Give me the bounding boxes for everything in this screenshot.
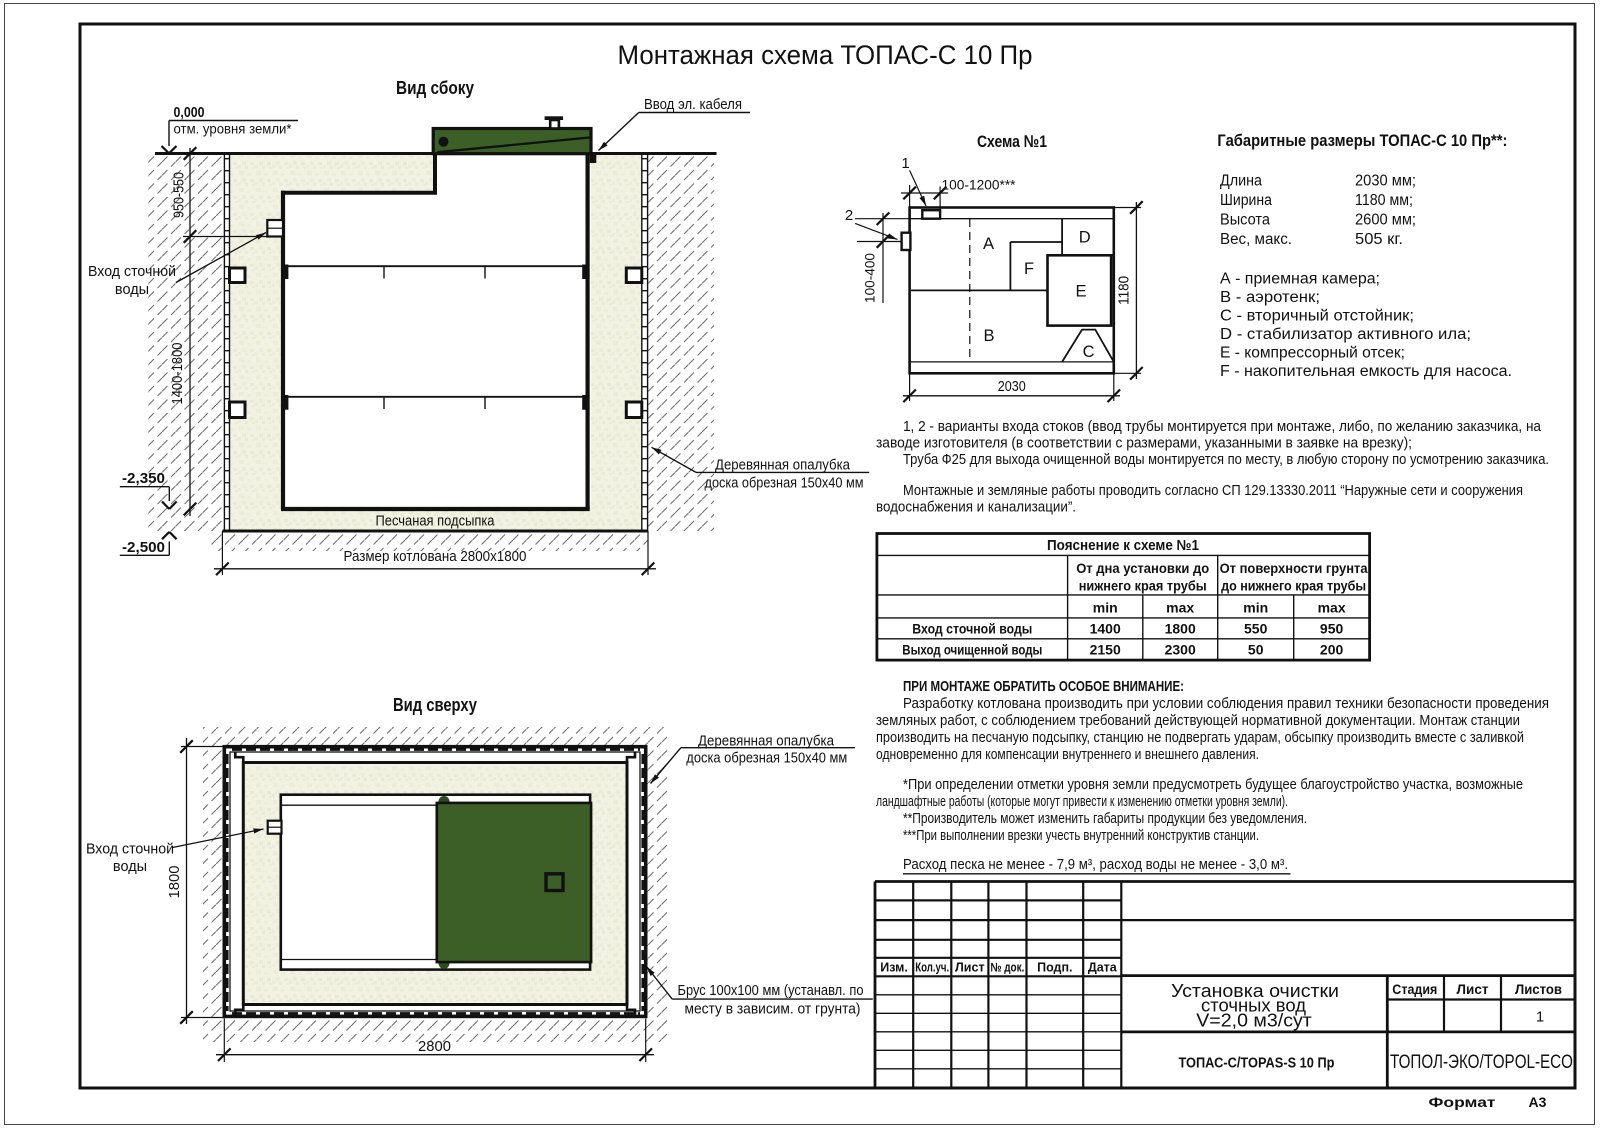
svg-text:200: 200 xyxy=(1320,642,1344,658)
svg-text:50: 50 xyxy=(1248,642,1264,658)
svg-text:В - аэротенк;: В - аэротенк; xyxy=(1220,289,1320,306)
svg-text:заводе изготовителя (в соответ: заводе изготовителя (в соответствии с ра… xyxy=(876,436,1412,452)
svg-text:V=2,0 м3/сут: V=2,0 м3/сут xyxy=(1196,1011,1312,1031)
svg-text:Вид сверху: Вид сверху xyxy=(393,695,477,715)
svg-text:505 кг.: 505 кг. xyxy=(1355,231,1403,248)
svg-text:водоснабжения и канализации”.: водоснабжения и канализации”. xyxy=(876,500,1076,516)
svg-text:100-400: 100-400 xyxy=(862,253,878,303)
svg-text:Монтажные и земляные работы пр: Монтажные и земляные работы проводить со… xyxy=(903,483,1523,499)
svg-text:Деревянная опалубка: Деревянная опалубка xyxy=(715,458,851,474)
svg-text:Высота: Высота xyxy=(1220,212,1270,229)
svg-text:Брус 100х100 мм (устанавл. по: Брус 100х100 мм (устанавл. по xyxy=(678,983,864,999)
svg-text:2030 мм;: 2030 мм; xyxy=(1355,173,1416,190)
svg-text:max: max xyxy=(1166,600,1194,616)
svg-text:D - стабилизатор активного ила: D - стабилизатор активного ила; xyxy=(1220,326,1471,343)
svg-text:1400-1800: 1400-1800 xyxy=(170,343,186,405)
svg-text:Схема №1: Схема №1 xyxy=(977,132,1047,151)
svg-text:2: 2 xyxy=(845,207,853,224)
svg-text:1: 1 xyxy=(1536,1009,1544,1026)
svg-text:Подп.: Подп. xyxy=(1037,961,1072,975)
svg-text:производить на песчаную подсып: производить на песчаную подсыпку, станци… xyxy=(876,730,1524,746)
svg-text:Кол.уч.: Кол.уч. xyxy=(915,961,949,975)
svg-text:Ввод эл. кабеля: Ввод эл. кабеля xyxy=(644,97,742,113)
svg-text:до нижнего края трубы: до нижнего края трубы xyxy=(1221,578,1366,594)
svg-text:Пояснение к схеме №1: Пояснение к схеме №1 xyxy=(1047,538,1199,554)
svg-text:950-550: 950-550 xyxy=(172,172,188,218)
svg-text:C: C xyxy=(1083,343,1095,361)
svg-text:месту в зависим. от грунта): месту в зависим. от грунта) xyxy=(685,1002,861,1018)
svg-text:2150: 2150 xyxy=(1090,642,1121,658)
svg-text:2030: 2030 xyxy=(998,379,1026,395)
svg-text:Монтажная схема ТОПАС-С 10 Пр: Монтажная схема ТОПАС-С 10 Пр xyxy=(618,40,1033,70)
svg-text:воды: воды xyxy=(113,859,147,875)
svg-text:***При выполнении врезки учест: ***При выполнении врезки учесть внутренн… xyxy=(903,828,1259,844)
svg-text:-2,350: -2,350 xyxy=(122,471,165,487)
svg-text:100-1200***: 100-1200*** xyxy=(942,177,1017,193)
svg-text:Расход песка не менее - 7,9 м³: Расход песка не менее - 7,9 м³, расход в… xyxy=(903,857,1288,873)
svg-text:ТОПАС-С/TOPAS-S 10 Пр: ТОПАС-С/TOPAS-S 10 Пр xyxy=(1179,1056,1335,1072)
svg-text:max: max xyxy=(1318,600,1346,616)
svg-text:Ширина: Ширина xyxy=(1220,192,1272,209)
svg-text:Лист: Лист xyxy=(1457,982,1489,997)
svg-text:Вход сточной воды: Вход сточной воды xyxy=(912,621,1032,637)
svg-text:2300: 2300 xyxy=(1165,642,1196,658)
svg-text:F: F xyxy=(1024,260,1034,278)
svg-text:воды: воды xyxy=(115,282,149,298)
svg-text:Длина: Длина xyxy=(1220,173,1262,190)
svg-text:550: 550 xyxy=(1244,621,1268,637)
svg-text:Вес, макс.: Вес, макс. xyxy=(1220,231,1292,248)
svg-text:А - приемная камера;: А - приемная камера; xyxy=(1220,271,1380,288)
svg-text:доска обрезная 150х40 мм: доска обрезная 150х40 мм xyxy=(705,475,864,491)
svg-text:От дна установки до: От дна установки до xyxy=(1076,560,1209,576)
svg-text:1180: 1180 xyxy=(1117,276,1133,305)
svg-text:D: D xyxy=(1079,229,1091,247)
svg-text:доска обрезная 150х40 мм: доска обрезная 150х40 мм xyxy=(686,751,847,767)
svg-text:B: B xyxy=(983,327,994,345)
svg-text:1, 2 - варианты входа стоков: 1, 2 - варианты входа стоков (ввод трубы… xyxy=(903,419,1542,435)
svg-text:**Производитель может изменить: **Производитель может изменить габариты … xyxy=(903,811,1307,827)
svg-text:Стадия: Стадия xyxy=(1392,982,1437,997)
svg-text:одновременно для компенсации в: одновременно для компенсации внутреннего… xyxy=(876,747,1259,763)
svg-text:ТОПОЛ-ЭКО/TOPOL-ECO: ТОПОЛ-ЭКО/TOPOL-ECO xyxy=(1390,1052,1573,1073)
svg-text:1800: 1800 xyxy=(166,866,183,899)
svg-text:2600 мм;: 2600 мм; xyxy=(1355,212,1416,229)
svg-text:0,000: 0,000 xyxy=(174,105,205,121)
svg-text:1: 1 xyxy=(901,155,909,172)
svg-text:земляных работ, с соблюдением: земляных работ, с соблюдением требований… xyxy=(876,713,1520,729)
svg-text:Габаритные размеры ТОПАС-С 10: Габаритные размеры ТОПАС-С 10 Пр**: xyxy=(1217,132,1507,150)
svg-text:Размер котлована 2800х1800: Размер котлована 2800х1800 xyxy=(344,548,527,565)
svg-text:Вид сбоку: Вид сбоку xyxy=(396,78,474,98)
svg-text:Песчаная подсыпка: Песчаная подсыпка xyxy=(376,513,496,530)
svg-text:А3: А3 xyxy=(1529,1094,1547,1110)
svg-text:От поверхности грунта: От поверхности грунта xyxy=(1220,560,1368,576)
svg-text:Лист: Лист xyxy=(955,961,985,975)
svg-text:Е - компрессорный отсек;: Е - компрессорный отсек; xyxy=(1220,345,1405,362)
svg-text:*При определении отметки уровн: *При определении отметки уровня земли пр… xyxy=(903,777,1523,793)
svg-text:1800: 1800 xyxy=(1165,621,1196,637)
svg-text:ПРИ МОНТАЖЕ ОБРАТИТЬ ОСОБОЕ ВН: ПРИ МОНТАЖЕ ОБРАТИТЬ ОСОБОЕ ВНИМАНИЕ: xyxy=(903,678,1184,695)
svg-text:№ док.: № док. xyxy=(990,961,1024,975)
svg-text:Вход сточной: Вход сточной xyxy=(88,264,176,280)
svg-text:Листов: Листов xyxy=(1515,982,1562,997)
svg-text:Разработку котлована производи: Разработку котлована производить при усл… xyxy=(903,696,1549,712)
svg-text:Труба Ф25 для выхода очищенной: Труба Ф25 для выхода очищенной воды монт… xyxy=(903,452,1549,468)
svg-text:Вход сточной: Вход сточной xyxy=(86,842,174,858)
svg-text:-2,500: -2,500 xyxy=(122,540,165,556)
svg-text:1400: 1400 xyxy=(1090,621,1121,637)
svg-text:min: min xyxy=(1243,600,1268,616)
svg-text:2800: 2800 xyxy=(418,1038,451,1055)
svg-text:1180 мм;: 1180 мм; xyxy=(1355,192,1413,209)
svg-text:отм. уровня земли*: отм. уровня земли* xyxy=(174,122,293,137)
svg-text:нижнего края трубы: нижнего края трубы xyxy=(1079,578,1207,594)
svg-text:min: min xyxy=(1093,600,1118,616)
svg-text:950: 950 xyxy=(1320,621,1344,637)
svg-text:Выход очищенной воды: Выход очищенной воды xyxy=(902,642,1042,658)
svg-text:Формат: Формат xyxy=(1429,1094,1496,1110)
svg-text:E: E xyxy=(1075,283,1086,301)
svg-text:ландшафтные работы (которые мо: ландшафтные работы (которые могут привес… xyxy=(876,794,1288,810)
svg-text:С - вторичный отстойник;: С - вторичный отстойник; xyxy=(1220,308,1414,325)
svg-text:Дата: Дата xyxy=(1088,961,1118,975)
svg-text:F - накопительная емкость для: F - накопительная емкость для насоса. xyxy=(1220,363,1512,380)
svg-text:A: A xyxy=(983,235,994,253)
svg-text:Изм.: Изм. xyxy=(880,961,908,975)
